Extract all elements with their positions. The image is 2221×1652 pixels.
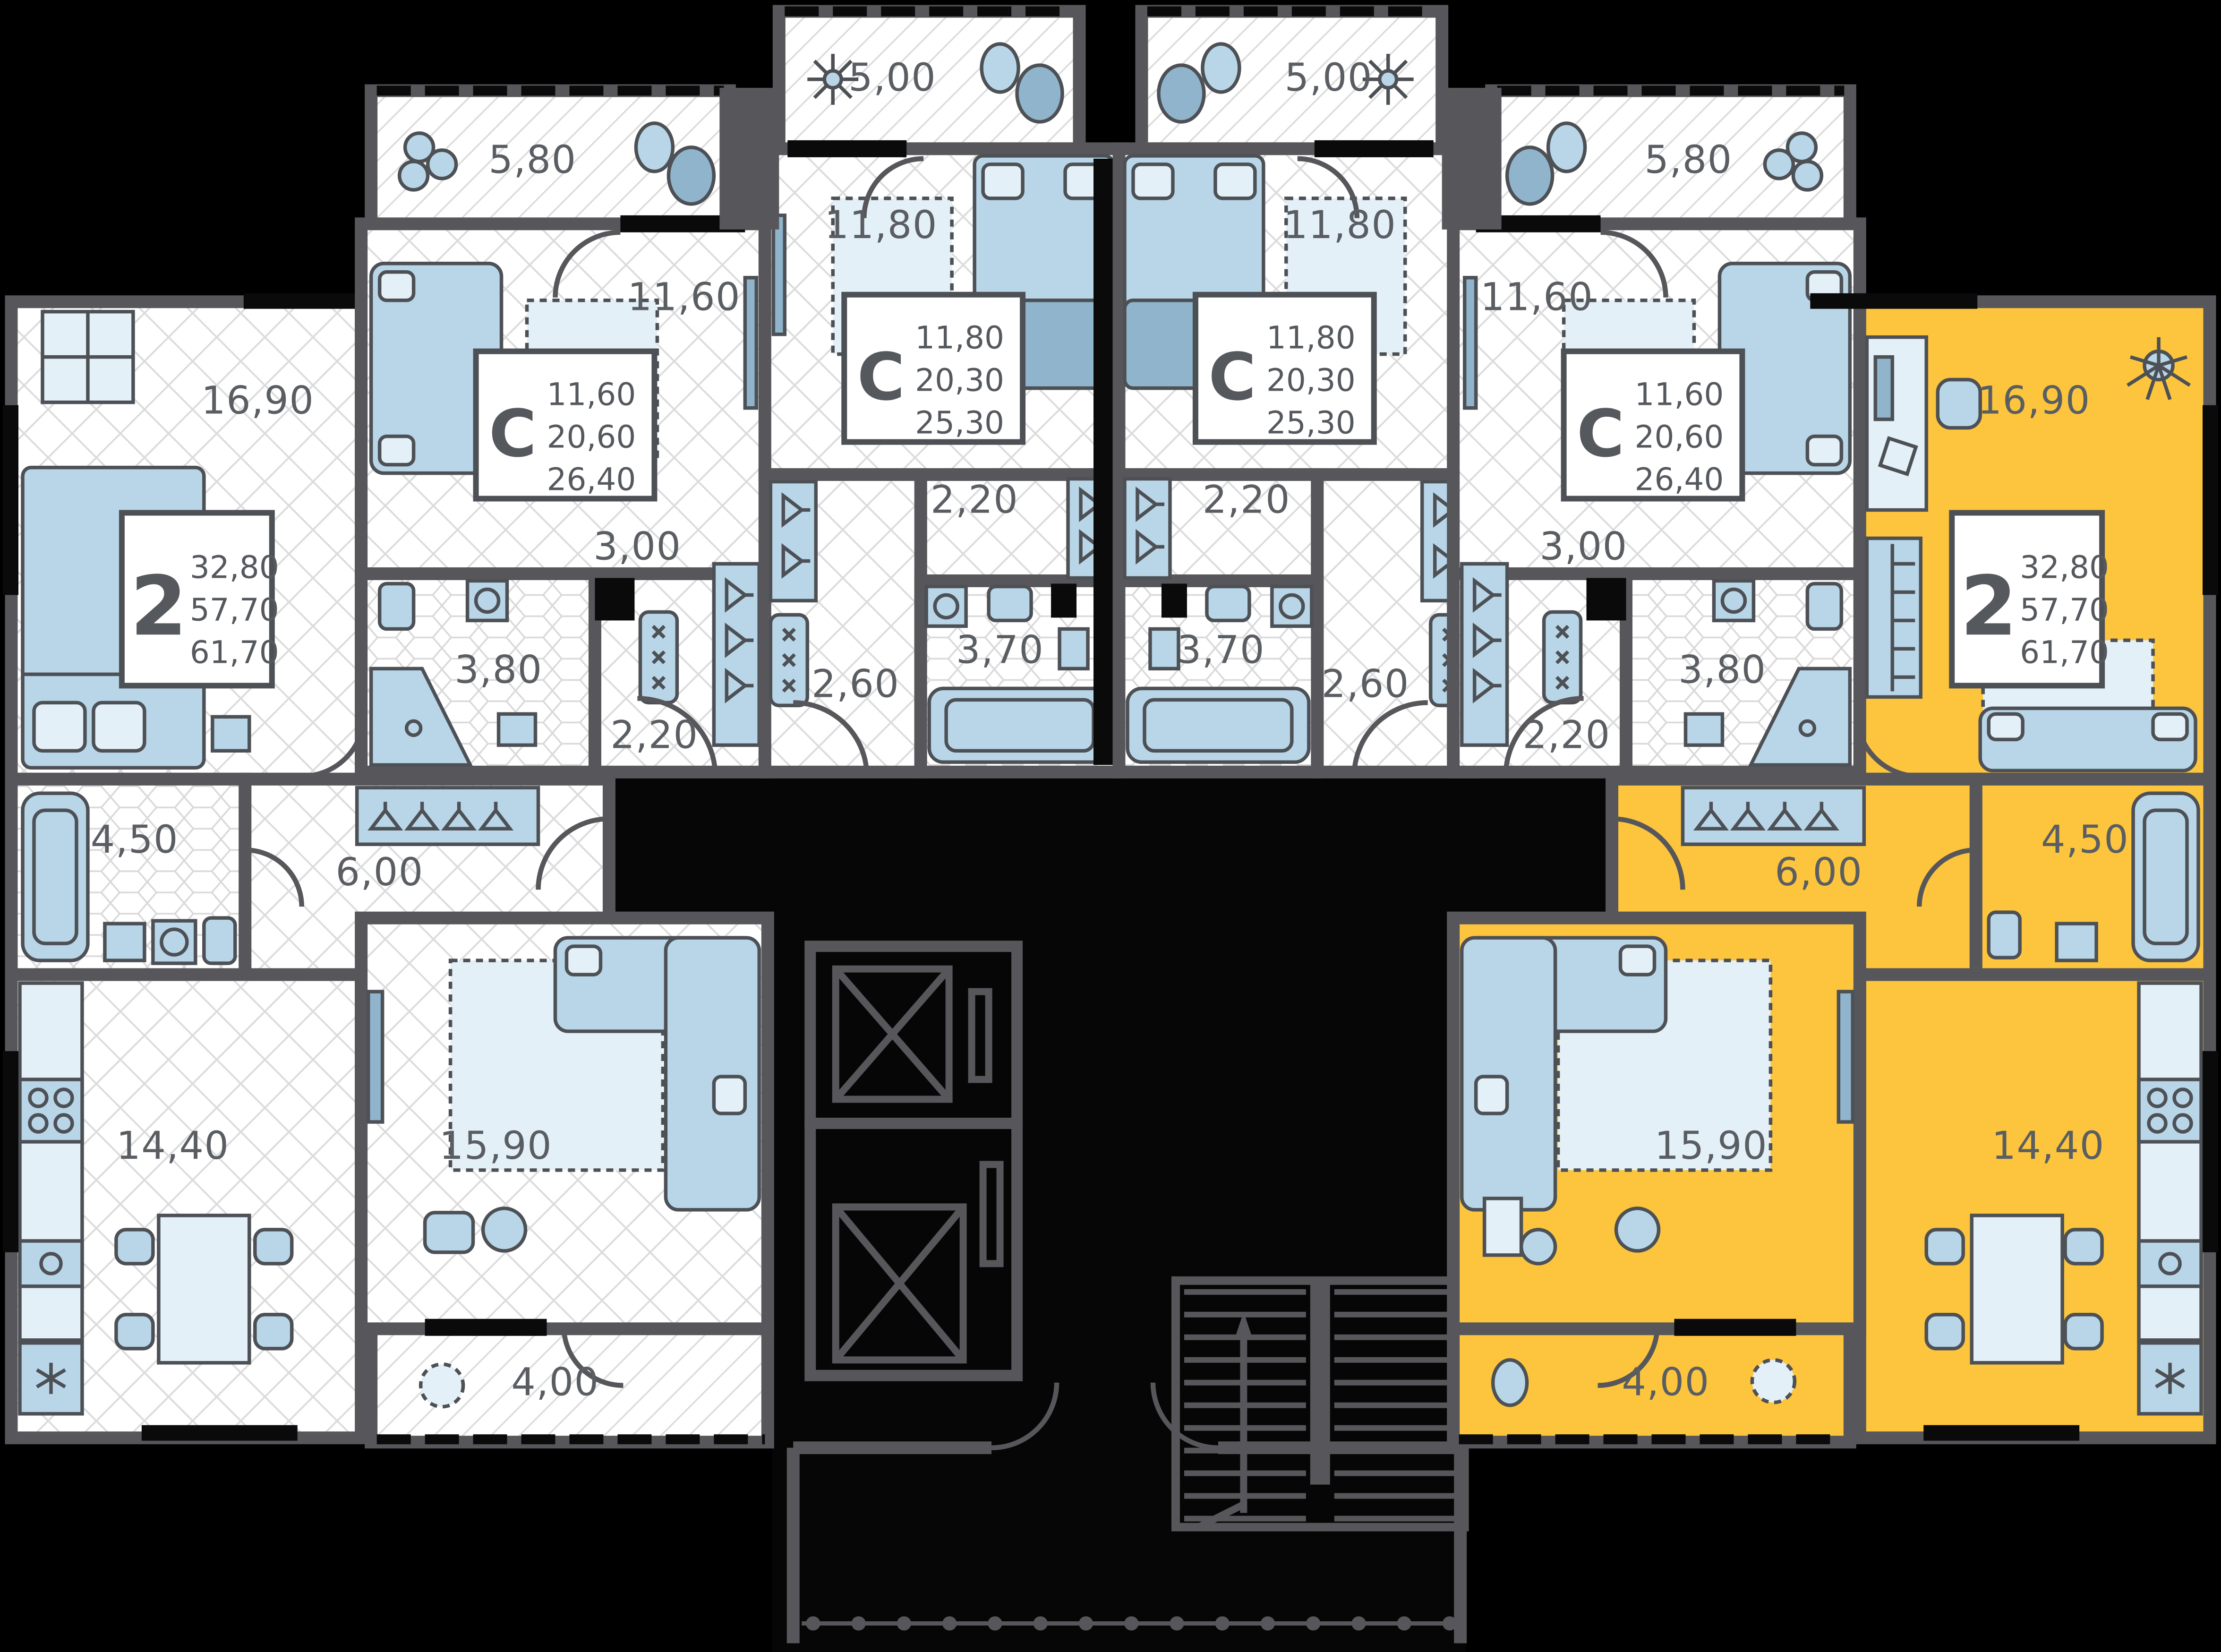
kitchen-counter-icon — [20, 983, 82, 1414]
apartment-studio-2[interactable]: 11,80 2,20 2,60 3,70 5,00 С 11,80 20,30 … — [765, 11, 1119, 776]
window — [1923, 1425, 2079, 1441]
window — [142, 1425, 298, 1441]
toilet-icon — [380, 583, 414, 629]
apartment-type-label: С — [1208, 339, 1256, 415]
window — [425, 1319, 547, 1336]
area-label: 2,60 — [1322, 662, 1409, 706]
window — [2203, 1051, 2218, 1252]
area-label: 3,70 — [956, 628, 1044, 672]
apartment-studio-4[interactable]: 11,60 3,00 3,80 2,20 5,80 С 11,60 20,60 … — [1453, 91, 1860, 776]
living-area: 32,80 — [2020, 549, 2109, 585]
area-label: 15,90 — [439, 1124, 552, 1168]
wardrobe-icon — [770, 482, 816, 601]
apartment-area: 20,60 — [547, 419, 636, 455]
total-area: 25,30 — [1266, 405, 1356, 441]
balcony-pot-icon — [1493, 1360, 1527, 1405]
wardrobe-icon — [1125, 479, 1170, 578]
apartment-info-card[interactable]: С 11,80 20,30 25,30 — [1196, 295, 1374, 442]
tv-icon — [1838, 992, 1853, 1122]
apartment-area: 20,60 — [1635, 419, 1724, 455]
kitchen-counter-icon — [2139, 983, 2201, 1414]
apartment-studio-3[interactable]: 11,80 2,20 2,60 3,70 5,00 С 11,80 20,30 … — [1119, 11, 1473, 776]
bedside-table-icon — [213, 717, 249, 751]
area-label: 6,00 — [336, 850, 424, 895]
armchair-icon — [425, 1213, 473, 1252]
coffee-table-icon — [483, 1208, 526, 1251]
kitchen-sink-icon — [2139, 1241, 2201, 1286]
area-label: 16,90 — [201, 379, 314, 423]
area-label: 4,00 — [1622, 1361, 1709, 1405]
wall-segment — [719, 88, 779, 230]
window — [3, 1051, 18, 1252]
apartment-info-card[interactable]: С 11,60 20,60 26,40 — [1564, 351, 1743, 499]
window — [1810, 293, 1977, 309]
area-label: 3,00 — [593, 524, 681, 569]
toilet-icon — [1989, 912, 2020, 958]
bathtub-icon — [929, 688, 1110, 762]
area-label: 15,90 — [1655, 1124, 1768, 1168]
area-label: 5,00 — [1285, 56, 1373, 100]
wardrobe-icon — [357, 787, 538, 844]
apartment-type-label: С — [489, 396, 537, 472]
floor-plan-svg: 16,90 4,50 6,00 14,40 15,90 4,00 2 32,80… — [0, 0, 2221, 1652]
vent-shaft — [1051, 583, 1076, 617]
area-label: 2,20 — [931, 478, 1018, 522]
stove-icon — [2139, 1079, 2201, 1142]
area-label: 2,20 — [610, 713, 698, 757]
toilet-icon — [1207, 586, 1249, 620]
apartment-type-label: С — [1577, 396, 1624, 472]
wardrobe-icon — [1683, 787, 1864, 844]
apartment-type-label: 2 — [1960, 559, 2017, 654]
area-label: 2,20 — [1203, 478, 1290, 522]
apartment-area: 20,30 — [915, 362, 1004, 399]
washer-icon — [153, 921, 196, 963]
vent-shaft — [1162, 583, 1187, 617]
area-label: 3,00 — [1539, 524, 1627, 569]
washer-icon — [926, 586, 966, 626]
window — [787, 140, 906, 157]
total-area: 61,70 — [190, 634, 279, 670]
kitchen-sink-icon — [20, 1241, 82, 1286]
wall-segment — [1442, 88, 1502, 230]
sink-icon — [499, 714, 536, 745]
area-label: 4,50 — [91, 818, 179, 862]
sofa-icon — [1980, 708, 2195, 770]
sofa-icon — [451, 938, 760, 1210]
area-label: 14,40 — [1992, 1124, 2105, 1168]
vent-shaft — [1587, 578, 1626, 620]
sink-icon — [1059, 629, 1088, 668]
piano-icon — [1867, 539, 1921, 697]
sofa-icon — [1462, 938, 1771, 1210]
monitor-icon — [1875, 357, 1892, 419]
area-label: 4,00 — [511, 1361, 599, 1405]
tv-icon — [773, 215, 785, 334]
apartment-area: 57,70 — [2020, 591, 2109, 628]
area-label: 14,40 — [116, 1124, 229, 1168]
living-area: 11,60 — [1635, 377, 1724, 413]
sink-icon — [105, 924, 145, 960]
washer-icon — [1272, 586, 1312, 626]
tv-icon — [368, 992, 383, 1122]
apartment-area: 20,30 — [1266, 362, 1356, 399]
apartment-info-card[interactable]: С 11,60 20,60 26,40 — [476, 351, 655, 499]
tv-icon — [1465, 278, 1476, 408]
living-area: 11,80 — [915, 320, 1004, 356]
area-label: 11,60 — [628, 275, 741, 320]
bathtub-icon — [23, 793, 88, 960]
apartment-type-label: С — [857, 339, 905, 415]
sink-icon — [1685, 714, 1722, 745]
area-label: 6,00 — [1775, 850, 1862, 895]
plant-icon — [421, 1364, 463, 1407]
toilet-icon — [989, 586, 1031, 620]
desk-chair-icon — [1938, 380, 1980, 428]
area-label: 11,60 — [1480, 275, 1593, 320]
living-area: 32,80 — [190, 549, 279, 585]
window — [1315, 140, 1434, 157]
area-label: 4,50 — [2041, 818, 2129, 862]
apartment-type-label: 2 — [130, 559, 187, 654]
living-area: 11,60 — [547, 377, 636, 413]
total-area: 26,40 — [1635, 462, 1724, 498]
total-area: 61,70 — [2020, 634, 2109, 670]
area-label: 3,80 — [1678, 648, 1766, 692]
bathtub-icon — [1128, 688, 1309, 762]
window — [1674, 1319, 1796, 1336]
window — [2203, 405, 2218, 595]
area-label: 2,60 — [812, 662, 899, 706]
sink-icon — [1150, 629, 1179, 668]
area-label: 5,00 — [848, 56, 936, 100]
coffee-table-icon — [1616, 1208, 1659, 1251]
lamp-icon — [1521, 1230, 1555, 1264]
apartment-studio-1[interactable]: 11,60 3,00 3,80 2,20 5,80 С 11,60 20,60 … — [361, 91, 768, 776]
total-area: 25,30 — [915, 405, 1004, 441]
apartment-info-card[interactable]: С 11,80 20,30 25,30 — [844, 295, 1023, 442]
side-table-icon — [1485, 1198, 1521, 1255]
area-label: 16,90 — [1978, 379, 2091, 423]
apartment-area: 57,70 — [190, 591, 279, 628]
apartment-info-card[interactable]: 2 32,80 57,70 61,70 — [1952, 513, 2109, 686]
area-label: 3,70 — [1177, 628, 1265, 672]
window — [3, 405, 18, 595]
wardrobe-icon — [1462, 564, 1507, 745]
tv-icon — [745, 278, 756, 408]
washer-icon — [468, 581, 507, 620]
toilet-icon — [204, 918, 235, 963]
vent-shaft — [595, 578, 634, 620]
wardrobe-icon — [714, 564, 759, 745]
area-label: 11,80 — [825, 203, 938, 248]
area-label: 5,80 — [488, 138, 576, 182]
dresser-icon — [640, 612, 677, 702]
area-label: 3,80 — [454, 648, 542, 692]
area-label: 11,80 — [1283, 203, 1396, 248]
shelf-icon — [43, 312, 133, 402]
area-label: 2,20 — [1522, 713, 1610, 757]
toilet-icon — [1807, 583, 1841, 629]
floor-plan-stage: 16,90 4,50 6,00 14,40 15,90 4,00 2 32,80… — [0, 0, 2221, 1652]
apartment-info-card[interactable]: 2 32,80 57,70 61,70 — [122, 513, 279, 686]
sink-icon — [2057, 924, 2096, 960]
area-label: 5,80 — [1644, 138, 1732, 182]
total-area: 26,40 — [547, 462, 636, 498]
plant-icon — [1752, 1360, 1794, 1403]
dresser-icon — [1544, 612, 1581, 702]
living-area: 11,80 — [1266, 320, 1356, 356]
stove-icon — [20, 1079, 82, 1142]
washer-icon — [1714, 581, 1753, 620]
dresser-icon — [770, 615, 807, 705]
bathtub-icon — [2133, 793, 2198, 960]
